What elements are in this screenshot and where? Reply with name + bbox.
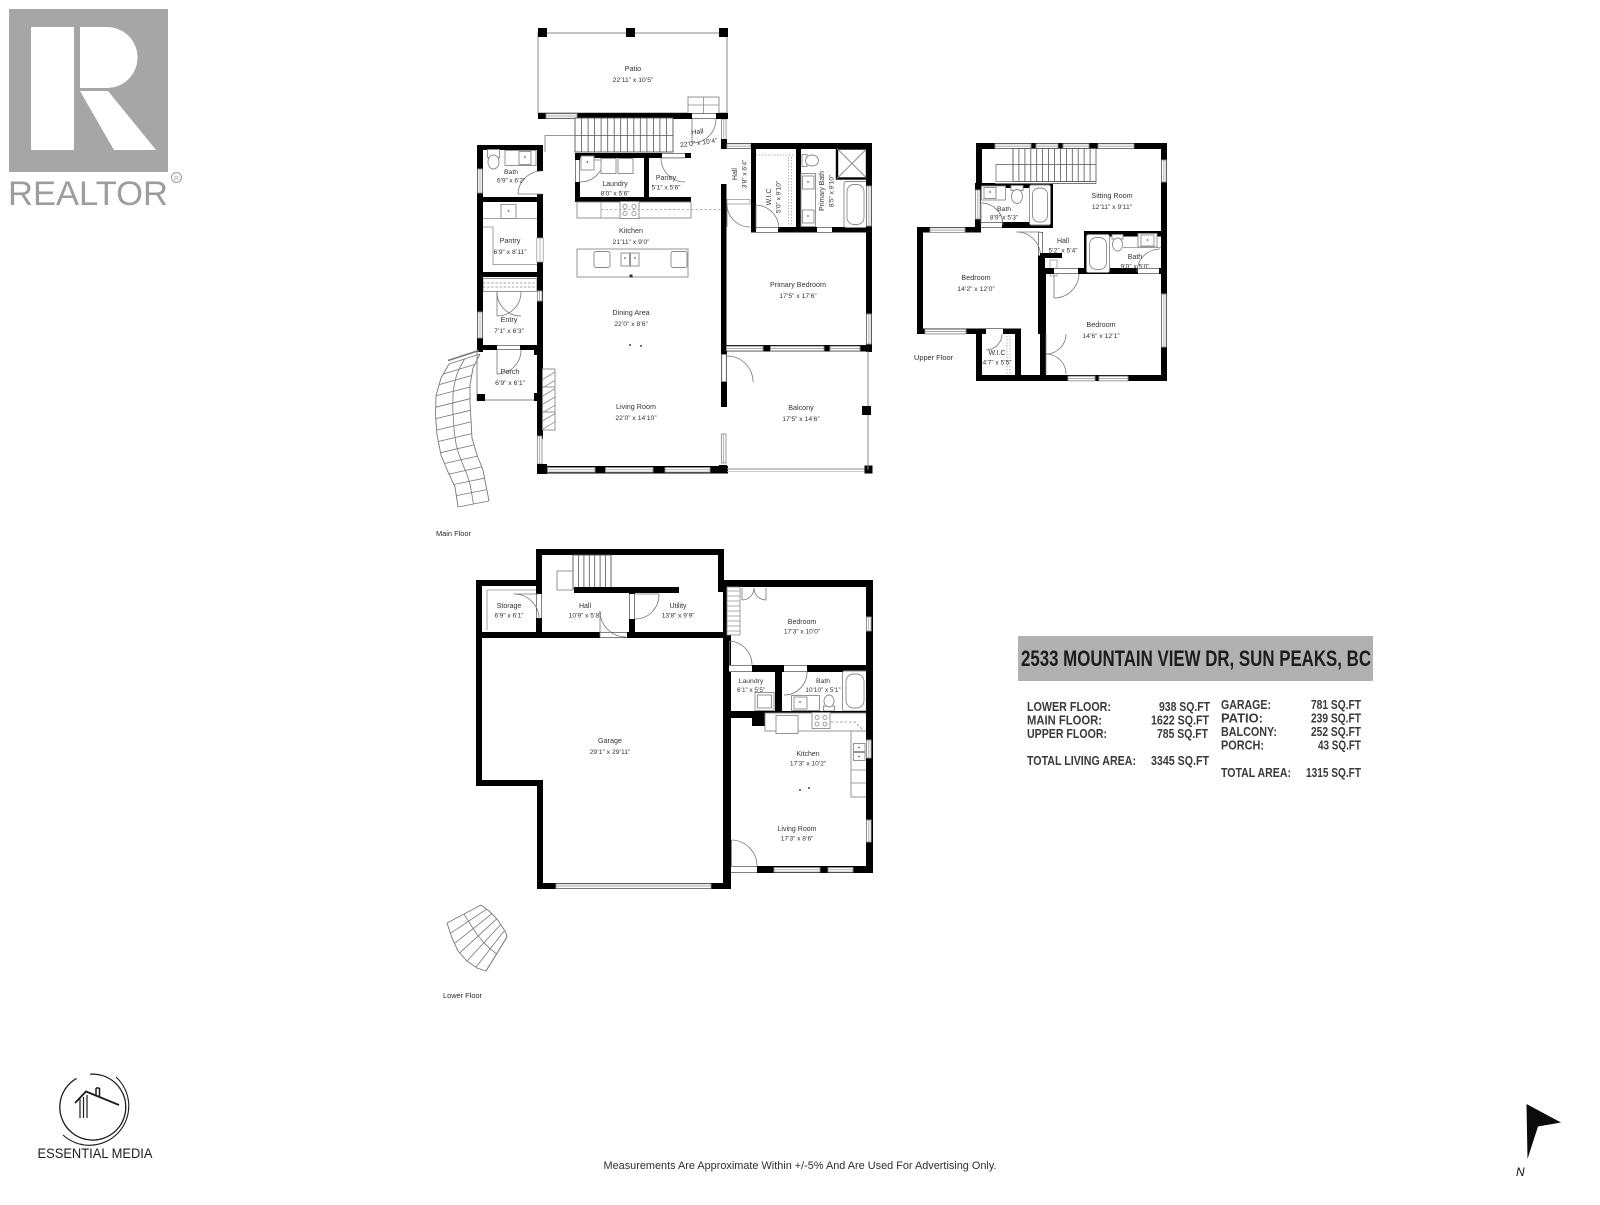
svg-text:43 SQ.FT: 43 SQ.FT	[1318, 739, 1361, 753]
svg-text:N: N	[1516, 1165, 1525, 1179]
svg-text:Kitchen: Kitchen	[619, 226, 643, 235]
svg-text:22’11” x 10’5”: 22’11” x 10’5”	[613, 77, 654, 84]
svg-text:TOTAL AREA:: TOTAL AREA:	[1221, 766, 1291, 780]
svg-text:Storage: Storage	[497, 603, 522, 610]
svg-text:8’9” x 5’3”: 8’9” x 5’3”	[990, 215, 1018, 222]
svg-text:22’0” x 14’10”: 22’0” x 14’10”	[615, 415, 657, 422]
svg-text:22’0” x 8’6”: 22’0” x 8’6”	[614, 321, 648, 328]
svg-text:1622 SQ.FT: 1622 SQ.FT	[1151, 714, 1209, 728]
svg-text:29’1” x 29’11”: 29’1” x 29’11”	[590, 749, 631, 756]
svg-text:PORCH:: PORCH:	[1221, 739, 1264, 753]
svg-text:Pantry: Pantry	[656, 175, 677, 182]
svg-text:Lower Floor: Lower Floor	[443, 991, 483, 1000]
svg-text:8’5” x 9’10”: 8’5” x 9’10”	[828, 175, 835, 207]
svg-text:Sitting Room: Sitting Room	[1091, 191, 1132, 200]
svg-text:R: R	[174, 176, 179, 183]
svg-text:Measurements Are Approximate W: Measurements Are Approximate Within +/-5…	[604, 1160, 997, 1172]
svg-text:10’9” x 5’8”: 10’9” x 5’8”	[569, 613, 602, 620]
svg-text:Patio: Patio	[625, 64, 641, 73]
svg-text:Pantry: Pantry	[500, 236, 521, 245]
svg-text:17’5” x 14’6”: 17’5” x 14’6”	[782, 416, 820, 423]
svg-text:TOTAL LIVING AREA:: TOTAL LIVING AREA:	[1027, 754, 1136, 768]
svg-text:781 SQ.FT: 781 SQ.FT	[1311, 698, 1361, 712]
svg-text:17’3” x 8’6”: 17’3” x 8’6”	[781, 836, 814, 843]
svg-text:5’0” x 9’10”: 5’0” x 9’10”	[775, 181, 782, 213]
svg-text:W.I.C: W.I.C	[988, 350, 1005, 357]
svg-text:21’11” x 9’0”: 21’11” x 9’0”	[613, 239, 651, 246]
svg-text:2533 MOUNTAIN VIEW DR, SUN PEA: 2533 MOUNTAIN VIEW DR, SUN PEAKS, BC	[1021, 646, 1371, 671]
svg-text:Kitchen: Kitchen	[796, 751, 819, 758]
svg-text:17’3” x 10’2”: 17’3” x 10’2”	[790, 761, 826, 768]
svg-text:3’8” x 6’4”: 3’8” x 6’4”	[741, 160, 748, 189]
svg-text:14’2” x 12’0”: 14’2” x 12’0”	[957, 286, 995, 293]
svg-text:Bath: Bath	[504, 169, 518, 176]
svg-text:Primary Bath: Primary Bath	[819, 171, 826, 211]
svg-text:BALCONY:: BALCONY:	[1221, 725, 1277, 739]
svg-text:785 SQ.FT: 785 SQ.FT	[1157, 727, 1208, 741]
svg-text:Utility: Utility	[669, 603, 687, 610]
svg-text:Hall: Hall	[691, 126, 705, 136]
svg-text:Main Floor: Main Floor	[436, 529, 471, 538]
svg-text:W.I.C: W.I.C	[766, 189, 773, 206]
svg-text:Bedroom: Bedroom	[788, 619, 817, 626]
svg-text:938 SQ.FT: 938 SQ.FT	[1159, 700, 1210, 714]
svg-text:8’0” x 5’6”: 8’0” x 5’6”	[601, 191, 630, 198]
svg-text:Bath: Bath	[997, 206, 1011, 213]
svg-text:Garage: Garage	[598, 736, 622, 745]
svg-text:3345 SQ.FT: 3345 SQ.FT	[1151, 754, 1209, 768]
svg-text:239 SQ.FT: 239 SQ.FT	[1311, 712, 1361, 726]
svg-text:6’9” x 8’11”: 6’9” x 8’11”	[493, 249, 527, 256]
svg-text:Hall: Hall	[1057, 238, 1070, 245]
svg-text:Bath: Bath	[816, 678, 830, 685]
svg-text:6’9” x 6’1”: 6’9” x 6’1”	[495, 613, 524, 620]
svg-text:5’1” x 5’6”: 5’1” x 5’6”	[652, 185, 681, 192]
svg-text:6’9” x 6’1”: 6’9” x 6’1”	[495, 380, 526, 387]
svg-text:9’0” x 5’0”: 9’0” x 5’0”	[1121, 264, 1150, 271]
svg-text:LOWER FLOOR:: LOWER FLOOR:	[1027, 700, 1111, 714]
svg-text:REALTOR: REALTOR	[8, 175, 168, 213]
svg-text:Living Room: Living Room	[616, 402, 656, 411]
svg-text:UPPER FLOOR:: UPPER FLOOR:	[1027, 727, 1107, 741]
svg-text:Hall: Hall	[579, 603, 592, 610]
svg-text:17’3” x 10’0”: 17’3” x 10’0”	[784, 629, 820, 636]
svg-text:GARAGE:: GARAGE:	[1221, 698, 1271, 712]
svg-text:ESSENTIAL MEDIA: ESSENTIAL MEDIA	[38, 1146, 153, 1161]
svg-text:Laundry: Laundry	[602, 181, 628, 188]
svg-text:PATIO:: PATIO:	[1221, 712, 1263, 726]
svg-text:Laundry: Laundry	[739, 678, 764, 685]
svg-text:4’7” x 5’5”: 4’7” x 5’5”	[983, 360, 1012, 367]
svg-text:Living Room: Living Room	[778, 826, 817, 833]
svg-text:Hall: Hall	[732, 168, 739, 180]
svg-text:6’9” x 6’2”: 6’9” x 6’2”	[497, 178, 525, 185]
svg-text:10’10” x 5’1”: 10’10” x 5’1”	[805, 687, 840, 694]
svg-text:MAIN FLOOR:: MAIN FLOOR:	[1027, 714, 1102, 728]
svg-text:13’8” x 9’9”: 13’8” x 9’9”	[662, 613, 695, 620]
svg-text:Upper Floor: Upper Floor	[914, 353, 954, 362]
svg-text:Dining Area: Dining Area	[612, 308, 649, 317]
svg-text:Bath: Bath	[1128, 254, 1143, 261]
svg-text:17’5” x 17’6”: 17’5” x 17’6”	[779, 293, 817, 300]
svg-text:Bedroom: Bedroom	[961, 273, 990, 282]
svg-text:Bedroom: Bedroom	[1086, 320, 1115, 329]
svg-text:Primary Bedroom: Primary Bedroom	[770, 280, 826, 289]
svg-text:Entry: Entry	[501, 315, 518, 324]
svg-text:7’1” x 6’3”: 7’1” x 6’3”	[494, 328, 525, 335]
svg-text:Balcony: Balcony	[788, 403, 814, 412]
svg-text:14’6” x 12’1”: 14’6” x 12’1”	[1082, 333, 1120, 340]
svg-text:Porch: Porch	[501, 367, 520, 376]
svg-text:252 SQ.FT: 252 SQ.FT	[1311, 725, 1361, 739]
svg-text:12’11” x 9’11”: 12’11” x 9’11”	[1092, 204, 1133, 211]
svg-text:6’1” x 5’5”: 6’1” x 5’5”	[737, 687, 765, 694]
svg-text:1315 SQ.FT: 1315 SQ.FT	[1306, 766, 1361, 780]
